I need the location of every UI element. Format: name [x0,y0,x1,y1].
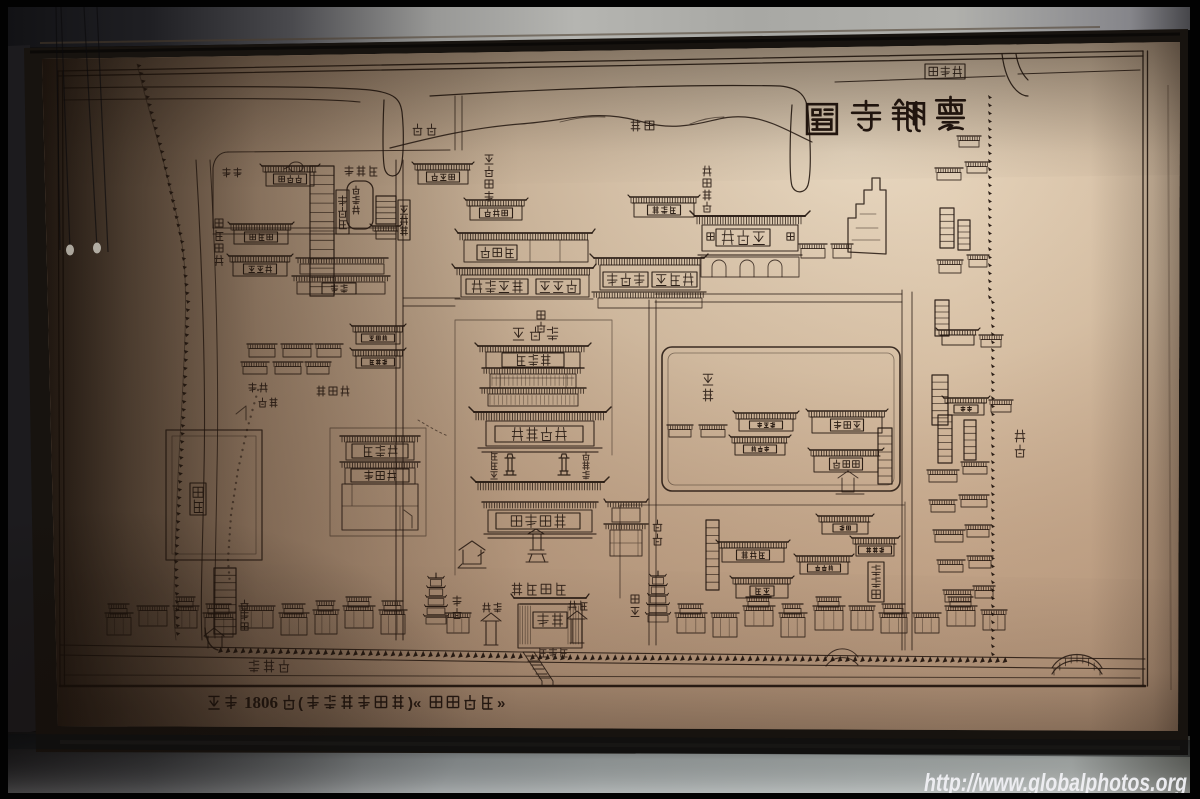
svg-text:http://www.globalphotos.org: http://www.globalphotos.org [924,769,1187,797]
